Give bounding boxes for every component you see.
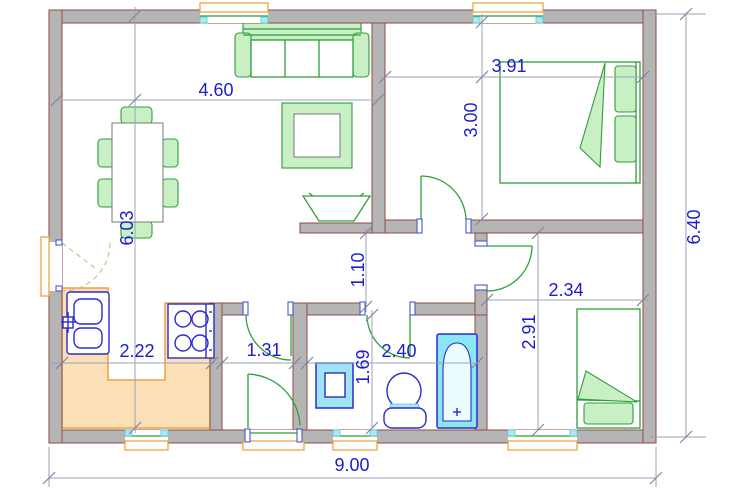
- coffee-table[interactable]: [282, 103, 352, 168]
- dim-house-depth: 6.40: [684, 209, 704, 244]
- dim-house-width: 9.00: [334, 455, 369, 475]
- dim-bedroom2-depth: 2.91: [519, 314, 539, 349]
- double-bed[interactable]: [500, 62, 640, 183]
- wall-closet-north: [222, 303, 243, 315]
- dim-kitchen-width: 2.22: [119, 341, 154, 361]
- wall-closet-east: [293, 303, 307, 430]
- single-bed[interactable]: [577, 309, 640, 428]
- dim-living-width: 4.60: [198, 80, 233, 100]
- wall-north: [49, 10, 656, 23]
- wall-west: [49, 10, 62, 443]
- dim-closet-width: 1.31: [246, 340, 281, 360]
- dim-hall-width: 1.10: [348, 252, 368, 287]
- stove[interactable]: [168, 304, 214, 358]
- wall-living-bedroom1: [372, 23, 385, 233]
- washbasin[interactable]: [316, 363, 353, 408]
- kitchen-sink[interactable]: [61, 292, 109, 354]
- chair[interactable]: [162, 139, 178, 167]
- wall-bedroom1-south-a: [385, 220, 421, 233]
- chair[interactable]: [162, 179, 178, 207]
- wall-bath-north-a: [307, 303, 365, 315]
- bedroom2-door[interactable]: [475, 241, 532, 291]
- floor-plan: 4.60 3.91 3.00 6.40 6.03 1.10 2.34 2.91 …: [0, 0, 740, 494]
- tv[interactable]: [303, 193, 370, 221]
- wall-tv-stub: [300, 223, 372, 233]
- dim-bathroom-depth: 1.69: [353, 349, 373, 384]
- bedroom1-door[interactable]: [417, 176, 471, 233]
- pillow: [615, 116, 636, 162]
- chair[interactable]: [121, 107, 152, 124]
- floor-plan-canvas: 4.60 3.91 3.00 6.40 6.03 1.10 2.34 2.91 …: [0, 0, 740, 494]
- dim-bedroom1-depth: 3.00: [461, 102, 481, 137]
- dim-bedroom1-width: 3.91: [491, 56, 526, 76]
- wall-bath-north-b: [410, 303, 475, 315]
- pillow: [615, 66, 636, 112]
- dim-bathroom-width: 2.40: [381, 341, 416, 361]
- wall-bedroom1-south-b: [468, 220, 643, 233]
- bathtub[interactable]: [437, 334, 477, 428]
- toilet[interactable]: [384, 373, 426, 428]
- dim-living-depth: 6.03: [117, 210, 137, 245]
- pillow: [584, 403, 633, 424]
- dim-bedroom2-width: 2.34: [548, 280, 583, 300]
- dining-table[interactable]: [112, 123, 163, 222]
- sofa[interactable]: [235, 22, 369, 77]
